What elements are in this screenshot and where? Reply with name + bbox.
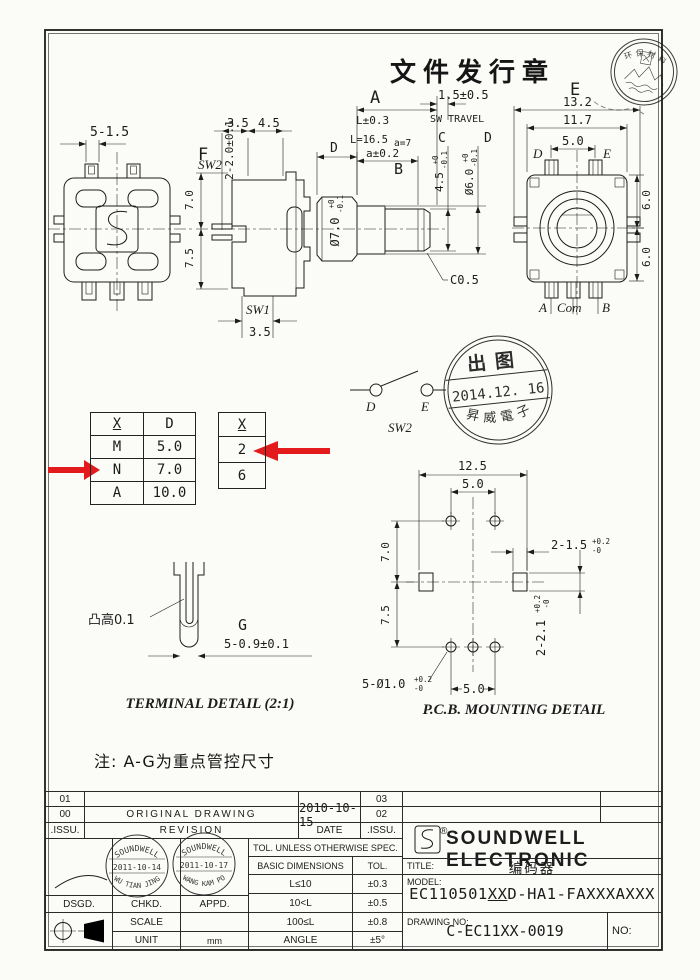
appd-stamp-cell (180, 838, 249, 896)
rev-blank (402, 806, 601, 823)
drawing-no-label: DRAWING NO: (407, 917, 469, 927)
dim-rear-60a: 6.0 (640, 190, 653, 210)
table-xd-cell-n: N (91, 459, 144, 482)
dim-pcb-pin-top: 5.0 (462, 477, 484, 491)
rev-issu-00: 00 (45, 806, 85, 823)
table-xd-header-x: X (91, 413, 144, 436)
dim-terminal: 5-0.9±0.1 (224, 637, 289, 651)
tol-row-val: ±0.5 (352, 893, 403, 913)
sw2-symbol: D E SW2 (350, 371, 446, 435)
pcb-title: P.C.B. MOUNTING DETAIL (423, 702, 606, 718)
scale-value (180, 912, 249, 932)
rev-blank (600, 791, 662, 807)
dim-rear-60b: 6.0 (640, 247, 653, 267)
terminal-detail: 凸高0.1 G 5-0.9±0.1 TERMINAL DETAIL (2:1) (88, 562, 312, 712)
pin-label-d: D (532, 146, 543, 161)
table-xd-cell: 10.0 (144, 482, 196, 505)
unit-label: UNIT (112, 931, 181, 950)
registered-mark-icon: ® (440, 826, 447, 837)
dim-d-minus: -0.1 (470, 149, 479, 167)
scale-label: SCALE (112, 912, 181, 932)
pin-label-b: B (602, 300, 610, 315)
dim-pcb-pin-bottom: 5.0 (463, 682, 485, 696)
table-xd-cell: 7.0 (144, 459, 196, 482)
svg-text:环保材料: 环保材料 (622, 44, 672, 69)
rev-issu-03: 03 (360, 791, 403, 807)
rev-issu-01: 01 (45, 791, 85, 807)
dim-side-75: 7.5 (183, 248, 196, 268)
dim-pcb-holes-plus: +0.2 (414, 675, 432, 684)
dim-shaft-dia-plus: +0 (327, 199, 336, 209)
pcb-detail: 12.5 5.0 7.0 7.5 2-1.5 (362, 459, 610, 718)
dim-pcb-holes: 5-Ø1.0 (362, 677, 405, 691)
tol-row-val: ±0.3 (352, 874, 403, 894)
tol-header: TOL. UNLESS OTHERWISE SPEC. (248, 838, 403, 857)
release-stamp-line3: 昇威電子 (463, 400, 538, 429)
tol-row-dim: 10<L (248, 893, 353, 913)
release-stamp: 出图 2014.12. 16 昇威電子 (439, 331, 558, 450)
seal-waves (626, 82, 658, 91)
dim-shaft-dia-minus: -0.1 (336, 195, 345, 213)
rev-date-value: 2010-10-15 (298, 806, 361, 823)
dim-pcb-slot2-minus: -0 (542, 599, 551, 609)
soundwell-logo-front (96, 206, 138, 252)
dim-pcb-slot1-minus: -0 (592, 546, 602, 555)
label-g: G (238, 616, 247, 634)
table-xd-header-d: D (144, 413, 196, 436)
dim-c: 4.5 (433, 172, 446, 192)
dim-pcb-slot2: 2-2.1 (534, 620, 548, 656)
dim-pcb-holes-minus: -0 (414, 684, 424, 693)
rev-issu-label: .ISSU. (45, 822, 85, 839)
label-sw2-side: SW2 (198, 157, 222, 172)
dim-pcb-70: 7.0 (379, 542, 392, 562)
pencil-mark (593, 102, 647, 116)
title-label: TITLE: (407, 861, 434, 871)
terminal-title: TERMINAL DETAIL (2:1) (126, 696, 295, 712)
seal-text: 环保材料 (622, 44, 672, 69)
pin-label-a: A (538, 300, 547, 315)
dim-sw1: 3.5 (249, 325, 271, 339)
pcb-holes (442, 512, 504, 656)
svg-text:昇威電子: 昇威電子 (463, 400, 538, 429)
signature-cell (45, 838, 113, 896)
table-xd-cell: A (91, 482, 144, 505)
dim-f: 2-2.0±0.1 (223, 120, 236, 180)
dim-rear-117: 11.7 (563, 113, 592, 127)
dsgd-label: DSGD. (45, 895, 113, 913)
rev-blank (402, 791, 601, 807)
rev-issu-02: 02 (360, 806, 403, 823)
drawing-sheet: 5-1.5 3.5 4 (0, 0, 700, 980)
dim-c-minus: -0.1 (440, 151, 449, 169)
side-view: 3.5 4.5 F 2-2.0±0.1 SW2 7.0 7.5 SW1 3.5 (183, 116, 448, 339)
tol-row-val: ±5° (352, 931, 403, 950)
chkd-stamp-cell (112, 838, 181, 896)
doc-stamp-title: 文件发行章 (390, 52, 560, 89)
dim-sw-travel: 1.5±0.5 (438, 88, 489, 102)
release-stamp-line1: 出图 (466, 347, 524, 376)
no-cell: NO: (607, 912, 662, 950)
dim-side-70: 7.0 (183, 190, 196, 210)
dim-l-val: L=16.5 (350, 134, 388, 146)
label-a: A (370, 88, 380, 108)
sw2-terminal-e: E (420, 399, 429, 414)
sw2-terminal-d: D (365, 399, 376, 414)
dim-pcb-slot1: 2-1.5 (551, 538, 587, 552)
rev-date-label: DATE (298, 822, 361, 839)
rear-view: E 13.2 11.7 5.0 D E (512, 80, 653, 316)
tol-row-val: ±0.8 (352, 912, 403, 932)
tol-label: TOL. (352, 856, 403, 875)
dim-pcb-125: 12.5 (458, 459, 487, 473)
front-view: 5-1.5 (48, 125, 192, 314)
dim-rear-pin5: 5.0 (562, 134, 584, 148)
pin-label-com: Com (557, 300, 582, 315)
dim-a-val: a=7 (394, 138, 411, 149)
dim-front-pins: 5-1.5 (90, 125, 129, 140)
release-stamp-line2: 2014.12. 16 (451, 380, 545, 406)
appd-label: APPD. (180, 895, 249, 913)
pin-label-e: E (602, 146, 611, 161)
tol-row-dim: ANGLE (248, 931, 353, 950)
seal-mountains (625, 63, 666, 86)
dim-a-tol: a±0.2 (366, 147, 399, 160)
dim-shaft-dia: Ø7.0 (328, 218, 342, 247)
rev-original-drawing: ORIGINAL DRAWING (84, 806, 299, 823)
dim-pcb-slot1-plus: +0.2 (592, 537, 610, 546)
table-xd-cell: 5.0 (144, 436, 196, 459)
note-text: 注: A-G为重点管控尺寸 (94, 748, 275, 772)
projection-cell (45, 912, 113, 950)
title-row: 编码器 (402, 858, 662, 875)
dim-d-plus: +0 (461, 153, 470, 163)
unit-value: mm (180, 931, 249, 950)
dim-d: Ø6.0 (463, 169, 476, 196)
dim-l: L±0.3 (356, 114, 389, 127)
chkd-label: CHKD. (112, 895, 181, 913)
dim-c-plus: +0 (431, 155, 440, 165)
rev-revision-label: REVISION (84, 822, 299, 839)
label-c: C (438, 131, 446, 146)
sw2-label: SW2 (388, 420, 412, 435)
dim-side-45: 4.5 (258, 116, 280, 130)
label-e: E (570, 80, 580, 100)
label-b: B (394, 160, 403, 178)
label-f: F (198, 145, 208, 165)
label-d-side: D (330, 141, 338, 156)
label-sw1: SW1 (246, 302, 270, 317)
tol-row-dim: 100≤L (248, 912, 353, 932)
table-xd: X D M 5.0 N 7.0 A 10.0 (90, 412, 196, 505)
table-x: X 2 6 (218, 412, 266, 489)
rev-issu-label2: .ISSU. (360, 822, 403, 839)
dim-pcb-75: 7.5 (379, 605, 392, 625)
table-xd-cell: M (91, 436, 144, 459)
dim-chamfer: C0.5 (450, 273, 479, 287)
model-value: EC110501XXD-HA1-FAXXXAXXX (409, 885, 655, 903)
basic-dim-label: BASIC DIMENSIONS (248, 856, 353, 875)
label-sw-travel: SW TRAVEL (430, 114, 484, 125)
rev-blank (600, 806, 662, 823)
table-x-header: X (219, 413, 266, 437)
dim-rear-132: 13.2 (563, 95, 592, 109)
dim-side-35: 3.5 (227, 116, 249, 130)
table-x-cell-6: 6 (219, 463, 266, 489)
shaft-dims: A L±0.3 L=16.5 a=7 a±0.2 B 1.5±0.5 SW TR… (350, 88, 492, 287)
terminal-bump-label: 凸高0.1 (88, 612, 135, 628)
eco-seal: 环保材料 (593, 32, 682, 120)
rev-blank (84, 791, 299, 807)
model-label: MODEL: (407, 877, 442, 887)
dim-pcb-slot2-plus: +0.2 (533, 595, 542, 613)
tol-row-dim: L≤10 (248, 874, 353, 894)
label-d-shaft: D (484, 131, 492, 146)
table-x-cell-2: 2 (219, 437, 266, 463)
